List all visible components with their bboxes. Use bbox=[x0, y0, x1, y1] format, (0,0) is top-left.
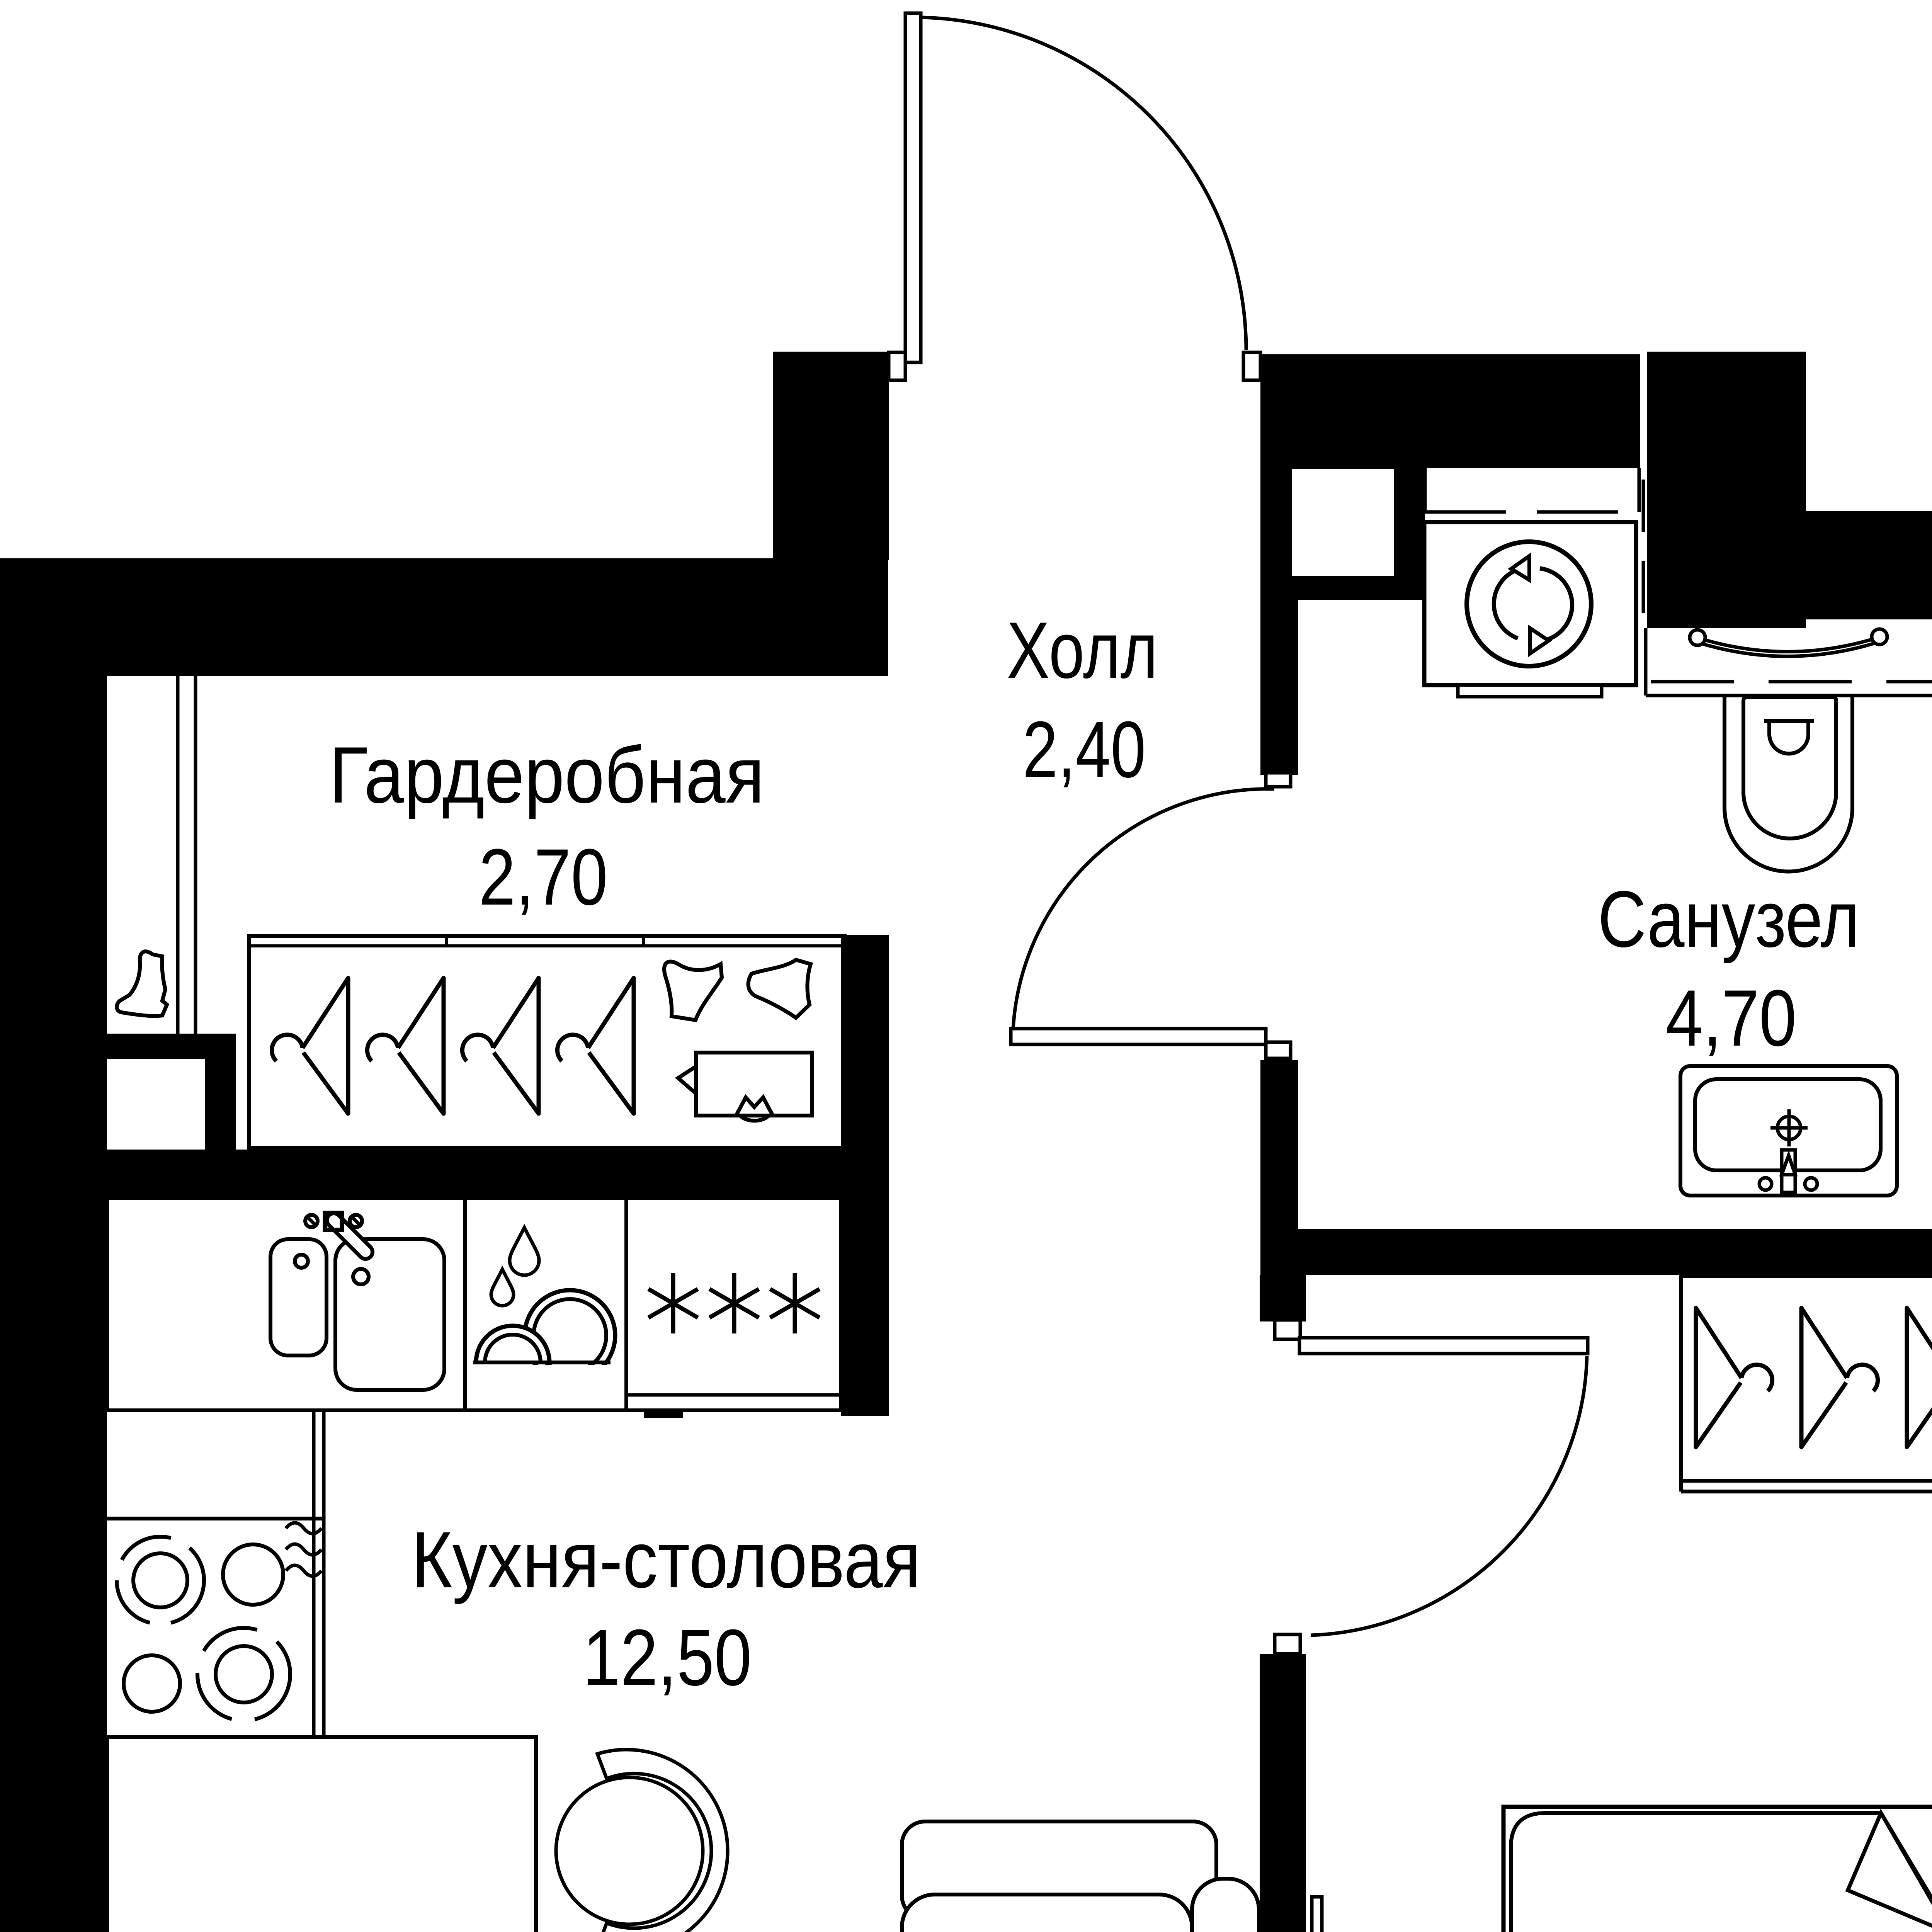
svg-text:Кухня-столовая: Кухня-столовая bbox=[412, 1515, 921, 1604]
svg-text:Санузел: Санузел bbox=[1598, 874, 1860, 964]
svg-text:2,40: 2,40 bbox=[1023, 705, 1146, 794]
svg-text:Холл: Холл bbox=[1007, 605, 1158, 695]
svg-text:Гардеробная: Гардеробная bbox=[329, 730, 765, 820]
svg-text:4,70: 4,70 bbox=[1666, 973, 1797, 1063]
svg-text:12,50: 12,50 bbox=[583, 1613, 752, 1702]
svg-text:2,70: 2,70 bbox=[479, 832, 608, 922]
